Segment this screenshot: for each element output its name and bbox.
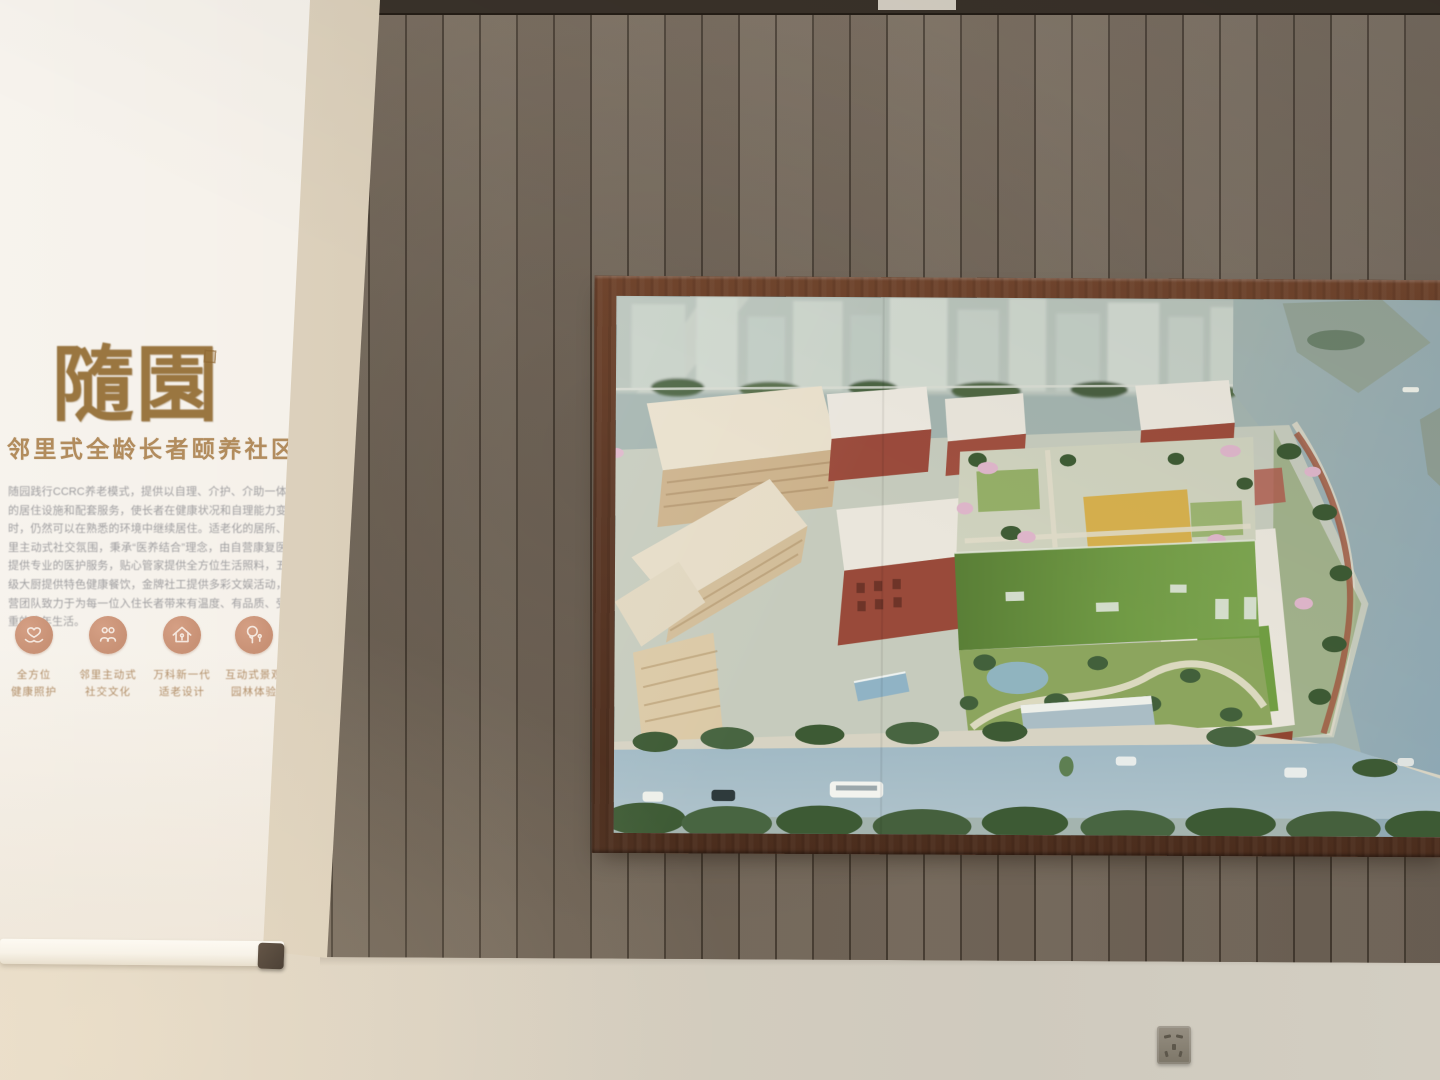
banner-body-text: 随园践行CCRC养老模式，提供以自理、介护、介助一体化的居住设施和配套服务，使长… (8, 483, 298, 632)
painting-canvas (614, 296, 1440, 837)
feature-social: 邻里主动式社交文化 (71, 616, 145, 701)
house-icon (163, 616, 201, 654)
feature-caption: 万科新一代适老设计 (145, 667, 219, 701)
boat (1403, 387, 1419, 392)
seal-mark-icon (204, 350, 217, 364)
heart-hands-icon (15, 616, 53, 654)
banner-subtitle: 邻里式全龄长者颐养社区 (7, 430, 307, 464)
tree-icon (235, 616, 273, 654)
framed-painting (591, 276, 1440, 857)
green-roof (954, 539, 1260, 652)
feature-design: 万科新一代适老设计 (145, 616, 219, 701)
power-outlet (1157, 1026, 1191, 1064)
feature-caption: 邻里主动式社交文化 (71, 667, 145, 701)
feature-caption: 全方位健康照护 (0, 667, 71, 701)
feature-list: 全方位健康照护 邻里主动式社交文化 万科新一代适老设计 互动式景观园林体验 (0, 616, 300, 736)
banner-title: 隨園 (52, 342, 272, 428)
banner-roller-endcap (258, 943, 285, 970)
banner-roller-bar (0, 939, 284, 966)
ceiling-light-gap (878, 0, 956, 10)
feature-health: 全方位健康照护 (0, 616, 71, 701)
people-icon (89, 616, 127, 654)
